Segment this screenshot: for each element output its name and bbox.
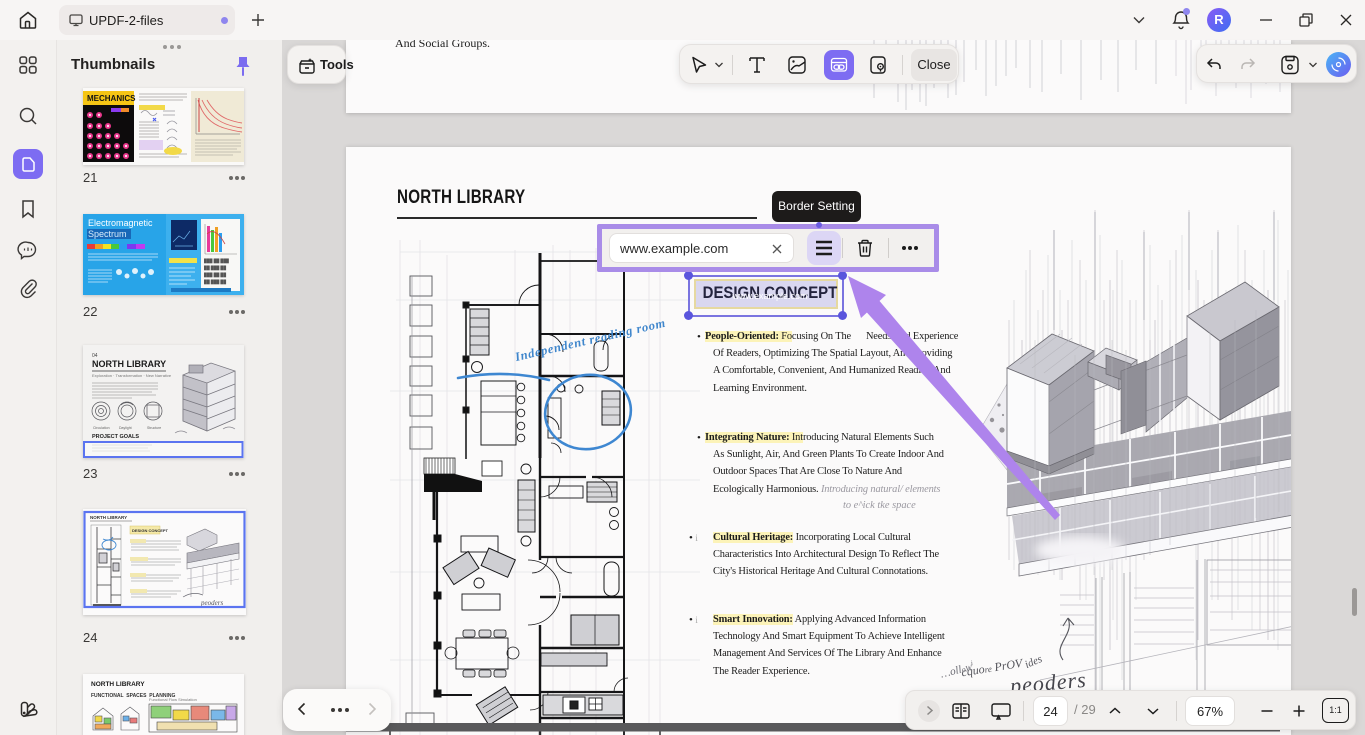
svg-text:Circulation: Circulation (93, 426, 110, 430)
svg-text:NORTH LIBRARY: NORTH LIBRARY (91, 681, 145, 688)
svg-text:NORTH LIBRARY: NORTH LIBRARY (92, 359, 166, 369)
svg-text:Electromagnetic: Electromagnetic (88, 218, 153, 228)
svg-text:Spectrum: Spectrum (88, 229, 127, 239)
svg-text:Daylight: Daylight (119, 426, 132, 430)
svg-text:NORTH LIBRARY: NORTH LIBRARY (90, 515, 127, 520)
svg-text:Functional Flow Simulation: Functional Flow Simulation (149, 697, 197, 702)
svg-text:peoders: peoders (200, 599, 223, 607)
svg-text:MECHANICS: MECHANICS (87, 94, 136, 103)
svg-text:DESIGN CONCEPT: DESIGN CONCEPT (132, 528, 169, 533)
svg-text:Structure: Structure (147, 426, 161, 430)
svg-text:PROJECT GOALS: PROJECT GOALS (92, 434, 139, 440)
svg-text:Exploration · Transformation ·: Exploration · Transformation · New Narra… (92, 373, 172, 378)
